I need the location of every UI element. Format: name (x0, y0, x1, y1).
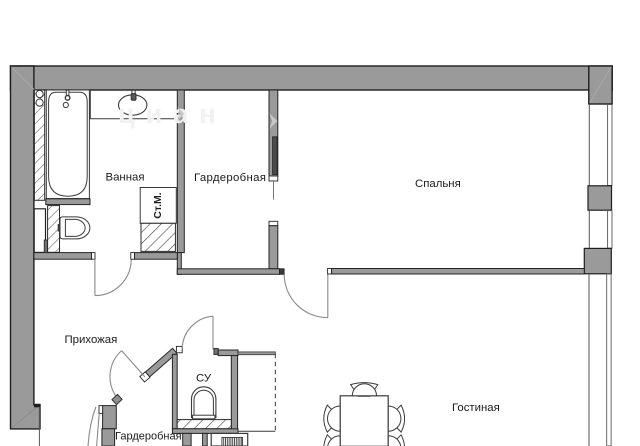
svg-text:Спальня: Спальня (415, 178, 461, 190)
svg-text:Гостиная: Гостиная (452, 402, 500, 414)
svg-text:Гардеробная: Гардеробная (115, 431, 182, 443)
svg-text:СУ: СУ (196, 373, 212, 385)
svg-text:Прихожая: Прихожая (65, 334, 118, 346)
svg-text:Гардеробная: Гардеробная (194, 172, 266, 184)
svg-text:Ванная: Ванная (106, 172, 145, 184)
svg-text:Ст.М.: Ст.М. (152, 192, 164, 218)
svg-text:циан: циан (118, 99, 227, 129)
